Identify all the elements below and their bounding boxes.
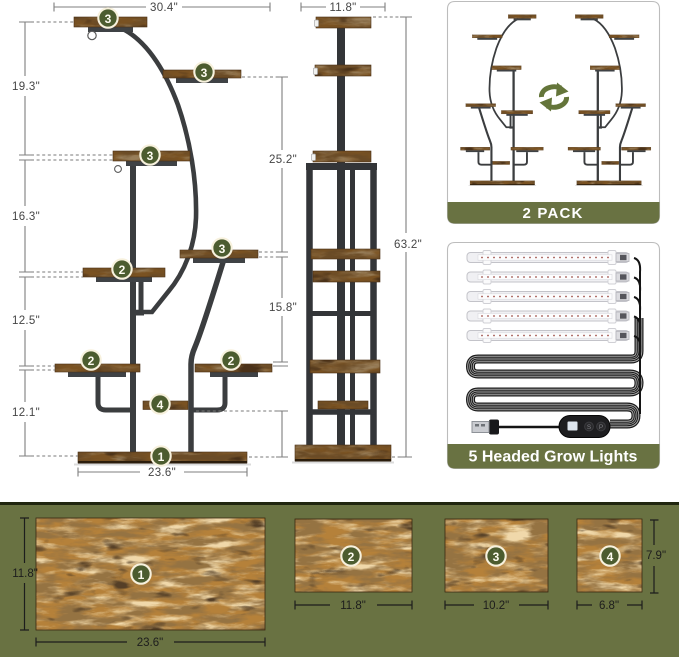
svg-text:1: 1 — [138, 568, 145, 582]
svg-text:2 PACK: 2 PACK — [522, 205, 583, 222]
svg-text:1: 1 — [158, 450, 165, 464]
svg-text:5 Headed Grow Lights: 5 Headed Grow Lights — [469, 449, 638, 466]
svg-text:3: 3 — [201, 66, 208, 80]
svg-text:19.3": 19.3" — [12, 81, 40, 93]
svg-text:2: 2 — [88, 354, 95, 368]
svg-text:63.2": 63.2" — [394, 239, 422, 251]
svg-text:11.8": 11.8" — [12, 568, 38, 580]
svg-text:16.3": 16.3" — [12, 211, 40, 223]
svg-text:2: 2 — [228, 354, 235, 368]
svg-text:3: 3 — [105, 12, 112, 26]
svg-text:6.8": 6.8" — [599, 600, 619, 612]
svg-text:12.5": 12.5" — [12, 315, 40, 327]
svg-text:23.6": 23.6" — [137, 637, 163, 649]
svg-text:P: P — [599, 424, 603, 431]
svg-text:3: 3 — [147, 149, 154, 163]
svg-text:7.9": 7.9" — [646, 550, 666, 562]
svg-text:S: S — [587, 424, 592, 431]
svg-text:11.8": 11.8" — [340, 600, 366, 612]
svg-text:30.4": 30.4" — [150, 2, 178, 14]
svg-text:2: 2 — [348, 550, 355, 564]
svg-text:15.8": 15.8" — [269, 302, 297, 314]
svg-text:25.2": 25.2" — [269, 154, 297, 166]
svg-text:2: 2 — [119, 263, 126, 277]
svg-text:4: 4 — [607, 550, 614, 564]
svg-text:23.6": 23.6" — [148, 467, 176, 479]
svg-text:3: 3 — [219, 242, 226, 256]
svg-text:12.1": 12.1" — [12, 407, 40, 419]
svg-text:4: 4 — [157, 398, 164, 412]
svg-text:3: 3 — [493, 550, 500, 564]
svg-text:11.8": 11.8" — [329, 2, 356, 14]
svg-text:10.2": 10.2" — [483, 600, 509, 612]
